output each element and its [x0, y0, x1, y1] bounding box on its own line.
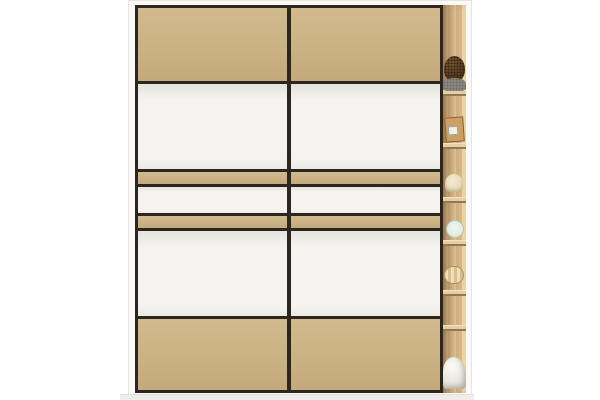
door-panel-tan	[138, 319, 287, 390]
door-panel-tan	[291, 8, 440, 81]
product-image-wardrobe	[0, 0, 600, 400]
door-panel-tan	[138, 216, 287, 228]
shelf-board	[443, 143, 466, 149]
shelf-board	[443, 290, 466, 296]
door-panel-tan	[291, 172, 440, 184]
decorative-plate	[446, 220, 464, 238]
shelf-board	[443, 325, 466, 331]
door-panel-white	[291, 187, 440, 213]
sliding-door-left	[138, 8, 287, 390]
fuzzy-gray-item	[443, 78, 466, 91]
door-panel-white	[138, 84, 287, 169]
door-panel-tan	[291, 216, 440, 228]
door-panel-white	[291, 84, 440, 169]
door-panel-tan	[138, 172, 287, 184]
white-cloth	[443, 357, 466, 389]
round-box	[444, 266, 464, 284]
sliding-doors-area	[135, 5, 443, 393]
shelf-board	[443, 197, 466, 203]
door-panel-white	[138, 187, 287, 213]
storage-box	[444, 116, 465, 142]
door-panel-tan	[138, 8, 287, 81]
door-panel-white	[138, 231, 287, 316]
open-shelf-column	[443, 5, 466, 393]
wardrobe-outer-frame	[128, 0, 472, 396]
shelf-board	[443, 240, 466, 246]
floor-shadow	[120, 394, 474, 400]
door-panel-tan	[291, 319, 440, 390]
cream-pouch	[445, 174, 463, 192]
door-panel-white	[291, 231, 440, 316]
sliding-door-right	[291, 8, 440, 390]
